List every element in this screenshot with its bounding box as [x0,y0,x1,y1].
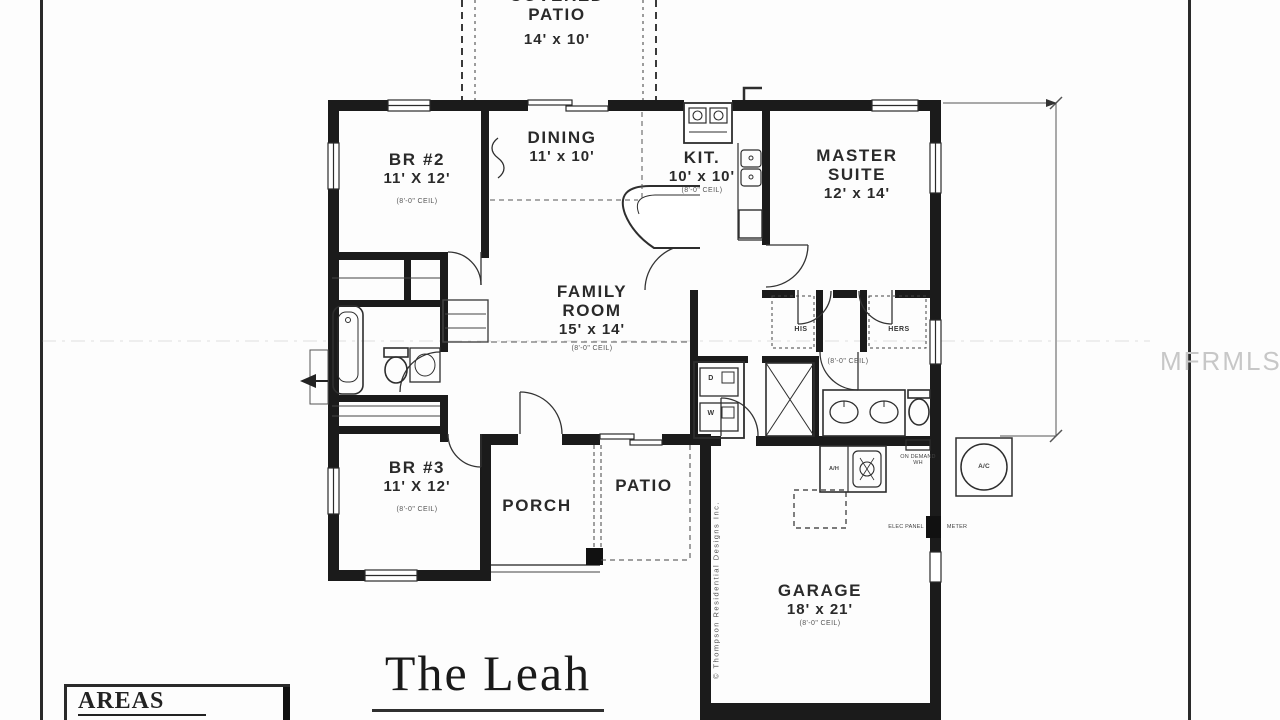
plan-title: The Leah [385,644,591,702]
room-label-covered-patio: COVERED PATIO 14' x 10' [509,0,604,49]
entry-marker [300,350,328,404]
toilet-icon [908,390,930,398]
mls-watermark: MFRMLS [1160,346,1280,377]
room-ceiling-note: (8'-0" CEIL) [557,345,627,352]
bath-ceiling-note: (8'-0" CEIL) [828,358,869,365]
room-name: BR #3 [383,458,450,477]
entry-arrow-icon [300,374,316,388]
room-label-master-suite: MASTER SUITE 12' x 14' [816,146,897,203]
air-handler-label: A/H [829,466,839,472]
plan-title-underline [372,709,604,712]
fridge-icon [739,210,762,238]
floorplan-drawing [0,0,1280,720]
elec-panel-icon [926,516,941,538]
room-ceiling-note: (8'-0" CEIL) [383,198,450,205]
room-ceiling-note: (8'-0" CEIL) [669,187,735,194]
dimension-lines [943,97,1062,442]
room-name: MASTER [816,146,897,165]
room-ceiling-note: (8'-0" CEIL) [383,506,450,513]
room-label-dining: DINING 11' x 10' [527,128,596,166]
room-name: SUITE [816,165,897,184]
room-ceiling-note: (8'-0" CEIL) [778,620,862,627]
vent-pipe-icon [744,88,762,100]
room-label-porch: PORCH [502,496,571,515]
washer-label: W [707,410,714,417]
room-dims: 10' x 10' [669,167,735,186]
garage-equipment [794,438,1012,538]
areas-heading-underline [78,714,206,720]
elec-meter-label: METER [947,524,967,530]
room-dims: 18' x 21' [778,600,862,619]
toilet-icon [384,348,408,357]
copyright-text: © Thompson Residential Designs Inc. [712,501,721,679]
room-name: KIT. [669,148,735,167]
room-dims: 12' x 14' [816,184,897,203]
washer-dryer-icons [694,362,744,438]
areas-heading: AREAS [78,688,164,715]
porch-post-icon [586,548,603,565]
floorplan-page: COVERED PATIO 14' x 10' BR #2 11' X 12' … [0,0,1280,720]
elec-panel-label: ELEC PANEL [888,524,924,530]
room-name: PATIO [615,476,672,495]
room-name: PORCH [502,496,571,515]
water-heater-label: ON DEMAND WH [900,454,935,466]
kitchen-sink-icon [741,150,761,167]
room-dims: 11' X 12' [383,169,450,188]
room-label-kitchen: KIT. 10' x 10' (8'-0" CEIL) [669,148,735,194]
room-label-br3: BR #3 11' X 12' (8'-0" CEIL) [383,458,450,513]
ac-label: A/C [978,464,990,470]
room-dims: 15' x 14' [557,320,627,339]
room-label-family-room: FAMILY ROOM 15' x 14' (8'-0" CEIL) [557,282,627,352]
his-closet-label: HIS [794,326,807,333]
attic-access-dashed [794,490,846,528]
room-label-garage: GARAGE 18' x 21' (8'-0" CEIL) [778,581,862,627]
room-name: PATIO [509,5,604,24]
dryer-label: D [708,375,714,382]
vanity-icon [823,390,905,436]
room-name: DINING [527,128,596,147]
hers-closet-label: HERS [888,326,909,333]
room-label-br2: BR #2 11' X 12' (8'-0" CEIL) [383,150,450,205]
room-label-patio: PATIO [615,476,672,495]
room-name: BR #2 [383,150,450,169]
room-name: GARAGE [778,581,862,600]
room-name: FAMILY [557,282,627,301]
room-dims: 11' X 12' [383,477,450,496]
room-dims: 14' x 10' [509,30,604,49]
room-name: ROOM [557,301,627,320]
room-dims: 11' x 10' [527,147,596,166]
dining-window-mark [492,138,504,178]
areas-table-edge [283,687,290,720]
